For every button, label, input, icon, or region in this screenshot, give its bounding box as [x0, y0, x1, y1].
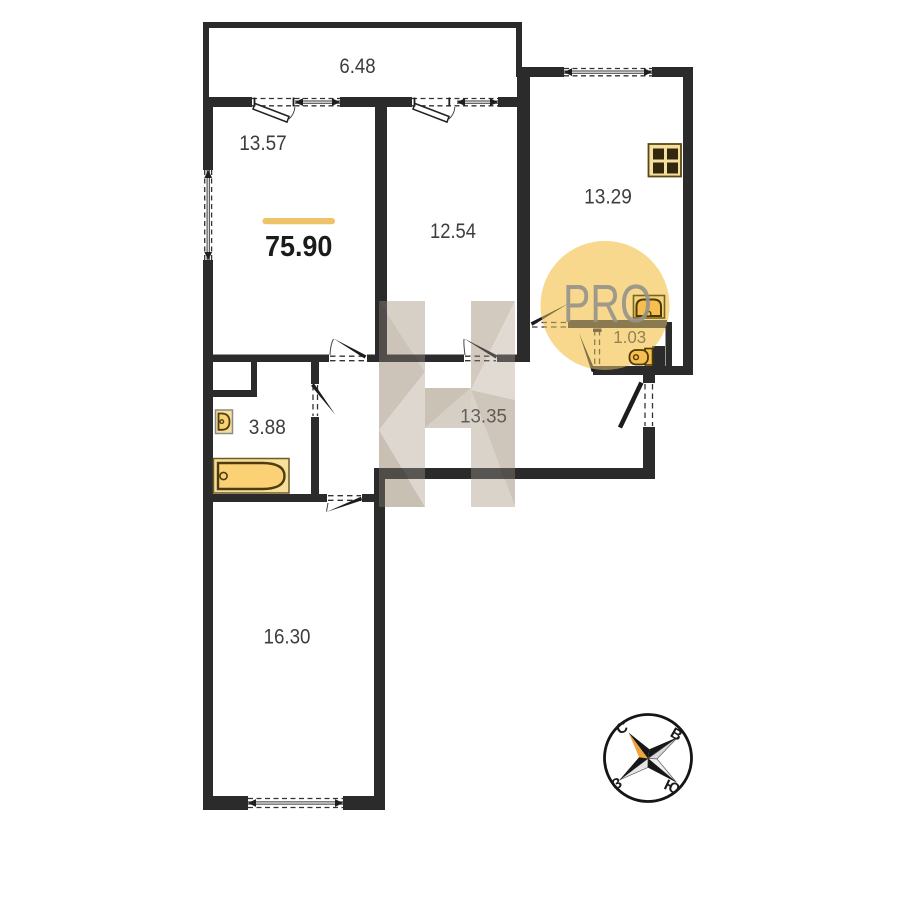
svg-text:13.29: 13.29 [584, 186, 632, 209]
svg-text:75.90: 75.90 [265, 231, 333, 263]
svg-text:12.54: 12.54 [430, 220, 476, 243]
svg-text:PRO: PRO [563, 275, 652, 335]
svg-text:16.30: 16.30 [264, 626, 311, 649]
svg-text:6.48: 6.48 [339, 55, 375, 78]
svg-text:3.88: 3.88 [249, 416, 286, 439]
svg-text:13.57: 13.57 [239, 132, 287, 155]
